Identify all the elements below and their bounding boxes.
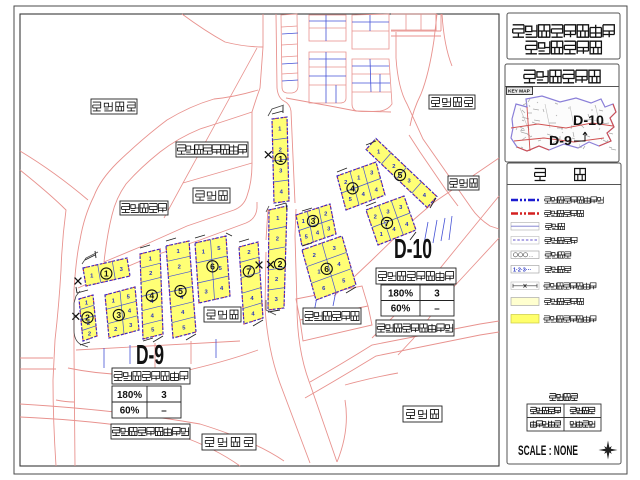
svg-text:2: 2 [114, 327, 117, 333]
svg-text:D-10: D-10 [394, 233, 432, 264]
svg-text:3: 3 [161, 390, 167, 401]
svg-text:3: 3 [311, 216, 316, 226]
svg-text:7: 7 [246, 266, 251, 276]
svg-text:2: 2 [276, 236, 279, 242]
svg-text:5: 5 [178, 286, 183, 296]
svg-text:1: 1 [104, 269, 109, 279]
svg-text:2: 2 [324, 212, 327, 218]
svg-text:KEY MAP: KEY MAP [508, 89, 531, 95]
svg-text:2: 2 [149, 271, 152, 277]
svg-text:2: 2 [278, 259, 283, 269]
svg-text:7: 7 [385, 218, 390, 228]
svg-text:–: – [434, 304, 440, 315]
svg-text:2: 2 [344, 180, 347, 186]
svg-text:2: 2 [275, 277, 278, 283]
svg-text:60%: 60% [391, 304, 411, 315]
svg-text:4: 4 [149, 291, 154, 301]
svg-text:D-10: D-10 [573, 112, 604, 128]
svg-text:SCALE : NONE: SCALE : NONE [518, 443, 578, 458]
svg-text:2: 2 [88, 331, 91, 337]
svg-text:2: 2 [374, 215, 377, 221]
svg-text:4: 4 [350, 183, 355, 193]
svg-text:–: – [161, 406, 167, 417]
svg-text:D-9: D-9 [549, 133, 572, 148]
svg-text:D-9: D-9 [136, 339, 164, 370]
svg-text:2: 2 [178, 265, 181, 271]
svg-text:3: 3 [116, 310, 121, 320]
svg-text:6: 6 [210, 261, 215, 271]
svg-text:5: 5 [398, 170, 403, 180]
svg-text:1: 1 [278, 154, 283, 164]
svg-text:3: 3 [434, 289, 440, 300]
svg-text:2: 2 [85, 313, 90, 323]
svg-text:2: 2 [247, 250, 250, 256]
svg-text:60%: 60% [120, 406, 140, 417]
svg-text:...: ... [529, 253, 533, 259]
svg-text:1·2·3···: 1·2·3··· [513, 268, 532, 274]
svg-text:180%: 180% [117, 390, 142, 401]
svg-text:2: 2 [392, 164, 395, 170]
svg-text:6: 6 [324, 264, 329, 274]
svg-text:180%: 180% [388, 289, 413, 300]
svg-text:2: 2 [313, 253, 316, 259]
